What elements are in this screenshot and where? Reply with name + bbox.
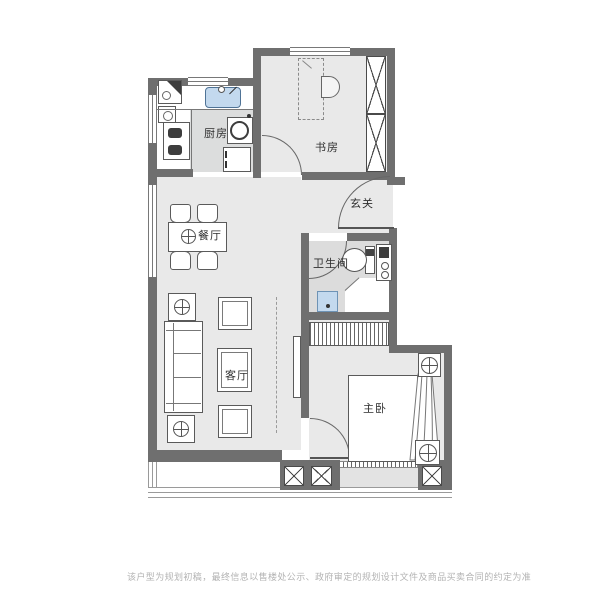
counter-edge-top [157, 109, 253, 110]
lamp-icon [421, 357, 438, 374]
stool [218, 297, 252, 330]
dining-chair [170, 251, 191, 270]
stool-top [222, 301, 248, 326]
sofa-cushion-line [173, 377, 201, 378]
living-bottom-wall [157, 450, 282, 462]
shower-tray [317, 291, 338, 312]
kitchen-side-window [148, 95, 157, 143]
lamp-icon [419, 444, 437, 462]
study-wardrobe [366, 114, 386, 172]
entry-label: 玄关 [339, 197, 385, 212]
dining-chair [197, 251, 218, 270]
floor-plan: 厨房 书房 玄关 餐厅 卫生间 客厅 主卧 该户型为规划初稿，最终信息以售楼处公… [0, 0, 600, 615]
lamp-table [167, 415, 195, 443]
stove-burner [168, 128, 182, 138]
bedroom-wardrobe [309, 322, 389, 346]
vanity-knob [381, 271, 389, 279]
lamp-icon [173, 421, 189, 437]
study-window [290, 47, 350, 56]
shower-drain [326, 304, 330, 308]
sofa [164, 321, 203, 413]
bedroom-top-wall [389, 345, 452, 353]
nightstand [415, 440, 440, 465]
vanity-mirror [379, 247, 389, 258]
corner-cabinet [158, 80, 182, 104]
dining-label: 餐厅 [193, 229, 227, 244]
fridge-handle [225, 151, 227, 158]
toilet-flush [366, 249, 374, 256]
stool [218, 405, 252, 438]
refrigerator [223, 147, 251, 172]
study-right-wall [387, 48, 395, 178]
kitchen-label: 厨房 [196, 127, 236, 142]
structural-column [284, 466, 304, 486]
balcony-floor [157, 462, 280, 487]
gas-stove [163, 122, 190, 160]
stove-burner [168, 145, 182, 155]
bedroom-door-leaf [310, 457, 350, 459]
dining-chair [170, 204, 191, 223]
disclaimer-text: 该户型为规划初稿，最终信息以售楼处公示、政府审定的规划设计文件及商品买卖合同的约… [127, 570, 531, 583]
cabinet-knob [162, 91, 171, 100]
dining-chair [197, 204, 218, 223]
faucet-handle [229, 87, 237, 95]
dining-window [148, 185, 157, 277]
fridge-handle [225, 161, 227, 168]
bedroom-label: 主卧 [357, 402, 393, 417]
sofa-cushion-line [173, 353, 201, 354]
balcony-railing-left [148, 462, 157, 487]
kitchen-sink [205, 87, 241, 108]
vanity-knob [381, 262, 389, 270]
bedroom-window-mullions [338, 461, 418, 468]
living-label: 客厅 [220, 369, 254, 384]
kitchen-study-wall [253, 48, 261, 178]
structural-column [422, 466, 442, 486]
faucet-icon [218, 86, 225, 93]
tv [293, 336, 301, 398]
vanity-basin [376, 244, 392, 281]
study-wardrobe [366, 56, 386, 114]
bathroom-bottom-wall [301, 312, 397, 320]
stool-top [222, 409, 248, 434]
bathroom-label: 卫生间 [303, 257, 359, 272]
kitchen-window [188, 77, 228, 86]
sofa-armrest [166, 330, 201, 331]
living-area-divider [276, 297, 278, 433]
sofa-armrest [166, 403, 201, 404]
lamp-icon [174, 299, 190, 315]
sofa-backrest [173, 323, 174, 411]
lamp-table [168, 293, 196, 321]
bathroom-top-wall-right [347, 233, 397, 241]
study-label: 书房 [302, 141, 352, 156]
nightstand [418, 353, 441, 377]
kitchen-bottom-wall [148, 169, 193, 177]
gas-meter-dial [163, 111, 173, 121]
washer-knob [247, 114, 251, 118]
entry-door-leaf [338, 227, 394, 229]
counter-edge-left [191, 109, 192, 169]
structural-column [311, 466, 332, 486]
